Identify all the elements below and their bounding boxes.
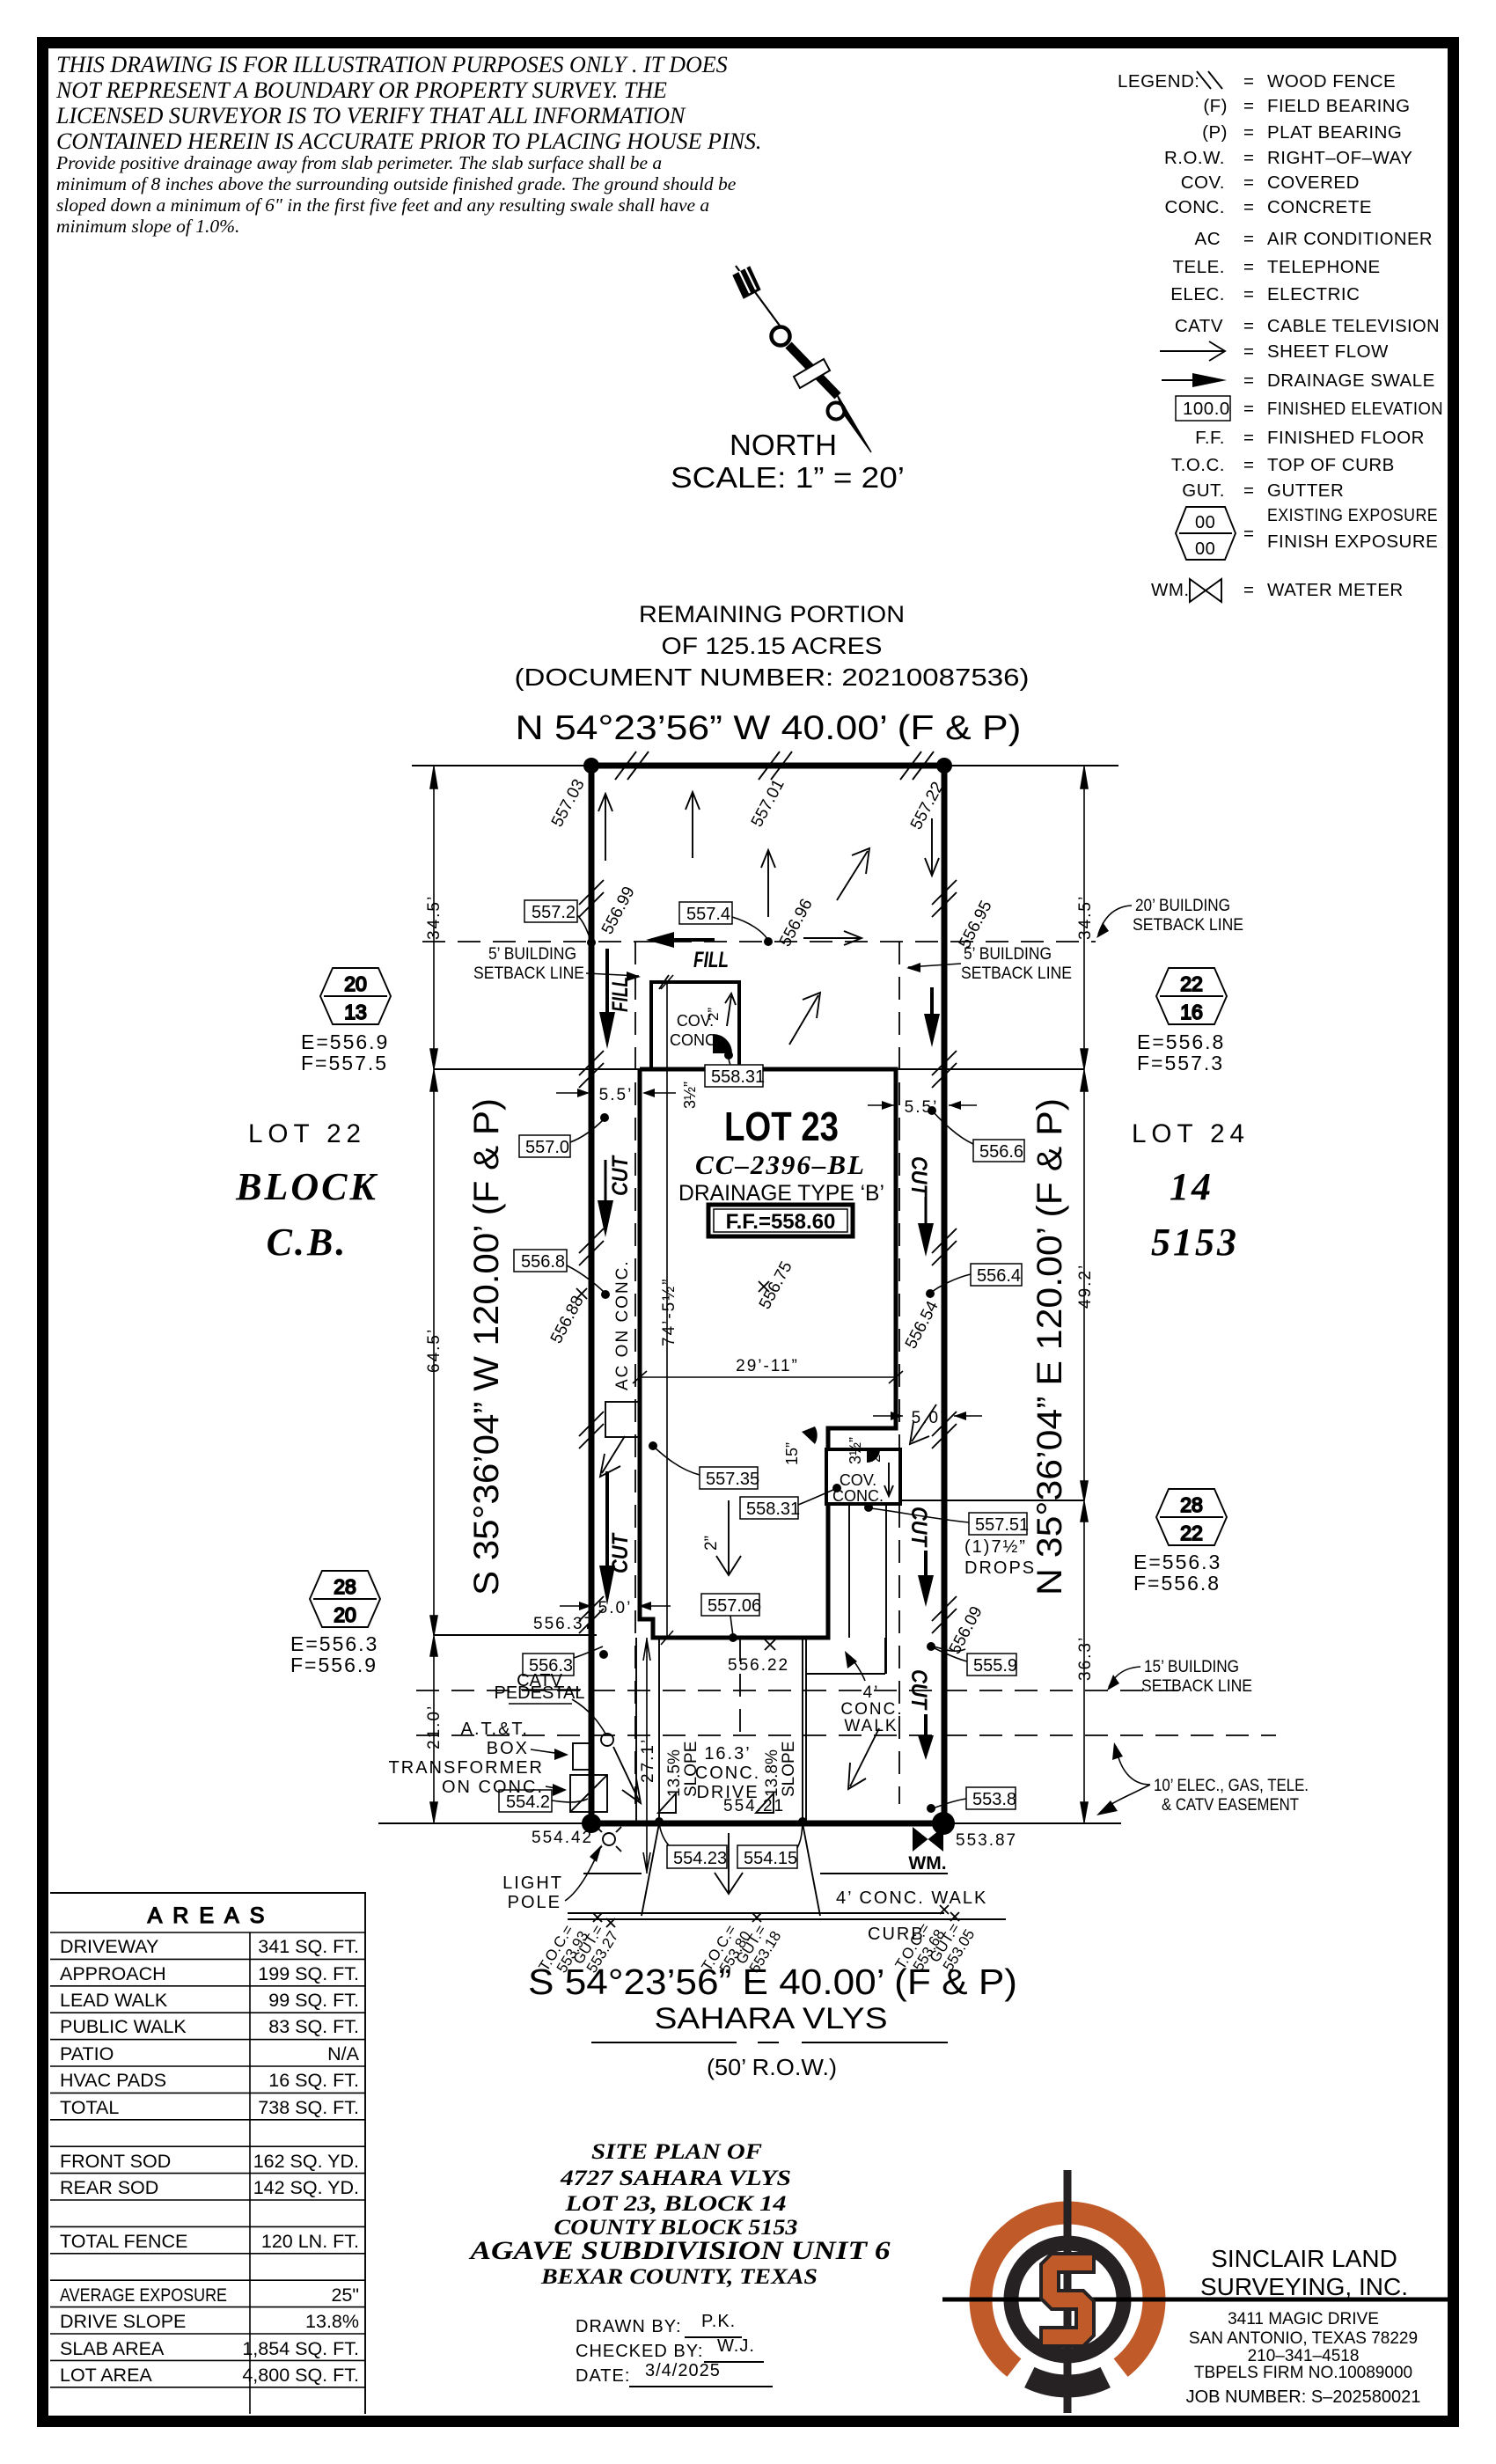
svg-text:GUTTER: GUTTER [1267, 480, 1344, 501]
svg-text:sloped down a minimum of 6" in: sloped down a minimum of 6" in the first… [56, 194, 709, 216]
svg-text:=: = [1243, 455, 1254, 475]
svg-text:RIGHT–OF–WAY: RIGHT–OF–WAY [1267, 148, 1412, 168]
svg-text:2”: 2” [705, 1008, 722, 1021]
svg-text:ELECTRIC: ELECTRIC [1267, 284, 1360, 304]
svg-text:N 54°23’56” W 40.00’ (F &: N 54°23’56” W 40.00’ (F & P) [516, 709, 1022, 747]
svg-text:557.2: 557.2 [532, 903, 576, 922]
svg-text:E=556.3: E=556.3 [290, 1632, 378, 1655]
svg-text:DRAINAGE SWALE: DRAINAGE SWALE [1267, 370, 1435, 391]
svg-text:CONC.: CONC. [840, 1700, 903, 1719]
svg-text:3/4/2025: 3/4/2025 [645, 2361, 721, 2380]
svg-text:DRIVE: DRIVE [696, 1783, 759, 1802]
svg-text:LIGHT: LIGHT [502, 1874, 563, 1893]
svg-text:SAHARA VLYS: SAHARA VLYS [655, 2002, 888, 2035]
svg-text:TOP OF CURB: TOP OF CURB [1267, 455, 1395, 475]
svg-text:556.09: 556.09 [946, 1603, 986, 1657]
svg-text:553.8: 553.8 [972, 1790, 1016, 1809]
svg-text:557.4: 557.4 [686, 905, 730, 924]
svg-text:FINISH EXPOSURE: FINISH EXPOSURE [1267, 532, 1438, 552]
svg-text:=: = [1243, 148, 1254, 168]
svg-text:SETBACK LINE: SETBACK LINE [1141, 1677, 1252, 1696]
svg-text:E=556.3: E=556.3 [1133, 1551, 1221, 1573]
svg-text:28: 28 [334, 1575, 356, 1598]
svg-text:TELEPHONE: TELEPHONE [1267, 257, 1381, 277]
svg-text:HVAC PADS: HVAC PADS [60, 2070, 166, 2091]
svg-text:15”: 15” [783, 1442, 801, 1465]
svg-text:SLAB AREA: SLAB AREA [60, 2338, 165, 2359]
svg-text:554.42: 554.42 [532, 1829, 593, 1847]
svg-text:557.0: 557.0 [525, 1138, 569, 1157]
svg-text:(DOCUMENT NUMBER: 20210087536: (DOCUMENT NUMBER: 20210087536) [515, 664, 1030, 691]
svg-text:341 SQ. FT.: 341 SQ. FT. [258, 1936, 359, 1957]
svg-text:WM.: WM. [908, 1853, 946, 1874]
svg-text:=: = [1243, 370, 1254, 391]
svg-text:556.8: 556.8 [521, 1252, 565, 1272]
svg-text:APPROACH: APPROACH [60, 1963, 166, 1984]
svg-text:FILL: FILL [693, 948, 729, 972]
svg-text:CC–2396–BL: CC–2396–BL [695, 1149, 866, 1180]
svg-text:25": 25" [331, 2284, 359, 2306]
svg-text:REMAINING PORTION: REMAINING PORTION [639, 601, 905, 627]
svg-text:LOT AREA: LOT AREA [60, 2365, 152, 2386]
svg-text:=: = [1243, 257, 1254, 277]
svg-text:=: = [1243, 341, 1254, 362]
svg-text:CONTAINED HEREIN IS ACCURATE P: CONTAINED HEREIN IS ACCURATE PRIOR TO PL… [56, 128, 761, 154]
svg-text:=: = [1243, 399, 1254, 419]
svg-text:5153: 5153 [1151, 1221, 1239, 1264]
svg-text:CONCRETE: CONCRETE [1267, 197, 1372, 217]
svg-text:120 LN. FT.: 120 LN. FT. [261, 2231, 359, 2252]
svg-text:PATIO: PATIO [60, 2043, 114, 2064]
svg-text:49.2’: 49.2’ [1076, 1264, 1095, 1309]
svg-text:SAN ANTONIO, TEXAS 78229: SAN ANTONIO, TEXAS 78229 [1189, 2329, 1418, 2348]
svg-text:COV.: COV. [1181, 172, 1225, 193]
svg-text:REAR SOD: REAR SOD [60, 2177, 158, 2198]
svg-text:555.9: 555.9 [973, 1656, 1017, 1676]
svg-text:PLAT BEARING: PLAT BEARING [1267, 122, 1402, 143]
svg-text:F=556.9: F=556.9 [290, 1654, 378, 1676]
svg-text:83 SQ. FT.: 83 SQ. FT. [268, 2016, 359, 2037]
svg-text:556.37: 556.37 [533, 1615, 595, 1633]
svg-text:100.0: 100.0 [1183, 399, 1230, 419]
svg-text:DROPS: DROPS [964, 1558, 1036, 1578]
svg-text:CUT: CUT [608, 1155, 633, 1196]
svg-text:WM.: WM. [1151, 580, 1190, 600]
svg-text:AIR CONDITIONER: AIR CONDITIONER [1267, 229, 1433, 249]
svg-text:DRIVEWAY: DRIVEWAY [60, 1936, 158, 1957]
svg-text:14: 14 [1170, 1165, 1214, 1208]
svg-text:28: 28 [1180, 1493, 1203, 1516]
svg-text:TOTAL FENCE: TOTAL FENCE [60, 2231, 187, 2252]
svg-text:SETBACK LINE: SETBACK LINE [961, 964, 1072, 983]
svg-text:POLE: POLE [508, 1893, 561, 1912]
svg-text:34.5’: 34.5’ [1076, 895, 1095, 940]
svg-text:COVERED: COVERED [1267, 172, 1360, 193]
svg-text:=: = [1243, 580, 1254, 600]
svg-text:5’ BUILDING: 5’ BUILDING [488, 945, 576, 964]
svg-text:TBPELS FIRM NO.10089000: TBPELS FIRM NO.10089000 [1194, 2364, 1412, 2382]
svg-text:LOT 23, BLOCK 14: LOT 23, BLOCK 14 [564, 2192, 786, 2216]
svg-text:& CATV EASEMENT: & CATV EASEMENT [1162, 1796, 1299, 1815]
svg-text:F.F.: F.F. [1195, 428, 1225, 448]
svg-text:557.51: 557.51 [975, 1515, 1029, 1535]
svg-text:SCALE: 1” = 20’: SCALE: 1” = 20’ [671, 461, 905, 494]
svg-text:16: 16 [1180, 1001, 1203, 1023]
svg-text:SURVEYING, INC.: SURVEYING, INC. [1200, 2273, 1408, 2300]
svg-text:ON CONC.: ON CONC. [442, 1778, 544, 1797]
svg-text:4’ CONC. WALK: 4’ CONC. WALK [836, 1888, 987, 1908]
svg-text:556.95: 556.95 [956, 898, 996, 951]
svg-text:5.0’: 5.0’ [598, 1599, 633, 1617]
svg-text:GUT.: GUT. [1182, 480, 1225, 501]
svg-text:WALK: WALK [844, 1717, 898, 1735]
svg-text:=: = [1243, 480, 1254, 501]
svg-text:27.1’: 27.1’ [639, 1738, 657, 1783]
svg-text:F=556.8: F=556.8 [1133, 1572, 1221, 1595]
svg-text:F.F.=558.60: F.F.=558.60 [726, 1210, 836, 1234]
svg-text:S 35°36’04” W 120.00’ (F & P): S 35°36’04” W 120.00’ (F & P) [467, 1098, 506, 1595]
svg-text:AREAS: AREAS [148, 1903, 275, 1928]
svg-text:142 SQ. YD.: 142 SQ. YD. [253, 2177, 359, 2198]
svg-text:minimum of 8 inches above the: minimum of 8 inches above the surroundin… [56, 173, 737, 194]
svg-text:FINISHED ELEVATION: FINISHED ELEVATION [1267, 399, 1443, 419]
svg-text:557.01: 557.01 [748, 776, 788, 830]
svg-text:E=556.8: E=556.8 [1137, 1030, 1225, 1053]
svg-text:CUT: CUT [906, 1156, 931, 1198]
svg-text:=: = [1243, 71, 1254, 92]
svg-text:CUT: CUT [906, 1669, 931, 1711]
svg-text:CUT: CUT [906, 1507, 931, 1548]
svg-text:556.4: 556.4 [977, 1266, 1021, 1286]
svg-text:22: 22 [1180, 1522, 1203, 1544]
svg-text:AGAVE SUBDIVISION UNIT 6: AGAVE SUBDIVISION UNIT 6 [468, 2236, 890, 2265]
svg-text:DATE:: DATE: [576, 2366, 630, 2386]
svg-text:NORTH: NORTH [730, 429, 837, 461]
svg-text:557.35: 557.35 [706, 1470, 759, 1489]
svg-text:738 SQ. FT.: 738 SQ. FT. [258, 2097, 359, 2118]
svg-text:00: 00 [1195, 513, 1215, 532]
svg-text:ELEC.: ELEC. [1170, 284, 1225, 304]
svg-text:LOT 22: LOT 22 [248, 1119, 366, 1148]
svg-text:210–341–4518: 210–341–4518 [1248, 2347, 1360, 2365]
svg-text:LEAD WALK: LEAD WALK [60, 1990, 168, 2011]
svg-text:2”: 2” [702, 1536, 721, 1551]
svg-text:=: = [1243, 96, 1254, 116]
svg-text:AC ON CONC.: AC ON CONC. [613, 1259, 632, 1390]
svg-text:TELE.: TELE. [1173, 257, 1225, 277]
svg-text:=: = [1243, 197, 1254, 217]
svg-text:BEXAR COUNTY, TEXAS: BEXAR COUNTY, TEXAS [540, 2265, 818, 2289]
svg-text:OF 125.15 ACRES: OF 125.15 ACRES [662, 633, 883, 659]
svg-text:4727 SAHARA VLYS: 4727 SAHARA VLYS [560, 2167, 791, 2190]
svg-text:WOOD FENCE: WOOD FENCE [1267, 71, 1396, 92]
svg-text:N/A: N/A [327, 2043, 360, 2064]
svg-text:=: = [1243, 428, 1254, 448]
svg-text:16.3’: 16.3’ [704, 1744, 751, 1764]
svg-text:C.B.: C.B. [267, 1221, 348, 1264]
svg-text:SETBACK LINE: SETBACK LINE [1133, 916, 1243, 935]
svg-text:554.23: 554.23 [673, 1849, 727, 1868]
svg-text:29’-11”: 29’-11” [736, 1357, 799, 1375]
svg-text:CABLE TELEVISION: CABLE TELEVISION [1267, 316, 1440, 336]
svg-text:CONC.: CONC. [1164, 197, 1225, 217]
svg-text:556.6: 556.6 [979, 1142, 1023, 1162]
svg-text:556.99: 556.99 [598, 884, 639, 937]
svg-text:WATER METER: WATER METER [1267, 580, 1404, 600]
svg-text:PEDESTAL: PEDESTAL [495, 1683, 585, 1703]
svg-text:22: 22 [1180, 972, 1203, 995]
svg-text:20: 20 [334, 1603, 356, 1626]
svg-text:SHEET FLOW: SHEET FLOW [1267, 341, 1389, 362]
svg-text:=: = [1243, 122, 1254, 143]
svg-text:13.5%: 13.5% [665, 1749, 684, 1797]
svg-text:1,854 SQ. FT.: 1,854 SQ. FT. [242, 2338, 359, 2359]
svg-text:DRAWN BY:: DRAWN BY: [576, 2317, 682, 2336]
svg-text:TOTAL: TOTAL [60, 2097, 119, 2118]
svg-text:64.5’: 64.5’ [425, 1328, 444, 1373]
svg-text:34.5’: 34.5’ [425, 895, 444, 940]
svg-text:99 SQ. FT.: 99 SQ. FT. [268, 1990, 359, 2011]
svg-text:FIELD BEARING: FIELD BEARING [1267, 96, 1411, 116]
svg-text:13.8%: 13.8% [305, 2311, 359, 2332]
svg-text:DRAINAGE TYPE ‘B’: DRAINAGE TYPE ‘B’ [678, 1181, 884, 1206]
svg-text:TRANSFORMER: TRANSFORMER [389, 1758, 544, 1778]
svg-text:AC: AC [1195, 229, 1221, 249]
svg-text:BLOCK: BLOCK [235, 1165, 378, 1208]
svg-text:BOX: BOX [487, 1739, 529, 1758]
svg-text:556.88: 556.88 [547, 1293, 588, 1346]
svg-text:A.T.&T.: A.T.&T. [461, 1720, 529, 1739]
svg-text:LEGEND:: LEGEND: [1118, 71, 1200, 92]
svg-text:558.31: 558.31 [711, 1067, 765, 1087]
svg-text:LOT 24: LOT 24 [1132, 1119, 1250, 1148]
svg-text:SETBACK LINE: SETBACK LINE [473, 964, 584, 983]
svg-text:P.K.: P.K. [701, 2312, 736, 2331]
svg-text:16 SQ. FT.: 16 SQ. FT. [268, 2070, 359, 2091]
svg-text:(1)7½”: (1)7½” [964, 1537, 1027, 1557]
svg-text:SITE PLAN OF: SITE PLAN OF [591, 2140, 762, 2164]
svg-text:20’ BUILDING: 20’ BUILDING [1135, 897, 1230, 915]
svg-text:LOT 23: LOT 23 [724, 1104, 839, 1149]
svg-text:SINCLAIR LAND: SINCLAIR LAND [1211, 2245, 1397, 2272]
svg-text:3½”: 3½” [847, 1437, 864, 1464]
svg-text:557.03: 557.03 [548, 776, 589, 830]
svg-text:CONC.: CONC. [695, 1764, 760, 1783]
svg-text:THIS DRAWING IS FOR ILLUSTRATI: THIS DRAWING IS FOR ILLUSTRATION PURPOSE… [56, 52, 728, 77]
svg-text:SLOPE: SLOPE [780, 1742, 798, 1797]
svg-text:5’ BUILDING: 5’ BUILDING [964, 945, 1052, 964]
svg-text:21.0’: 21.0’ [425, 1705, 444, 1749]
svg-text:(50’ R.O.W.): (50’ R.O.W.) [707, 2054, 837, 2080]
svg-text:199 SQ. FT.: 199 SQ. FT. [258, 1963, 359, 1984]
svg-text:W.J.: W.J. [717, 2336, 755, 2356]
svg-text:E=556.9: E=556.9 [301, 1030, 389, 1053]
svg-text:556.54: 556.54 [902, 1298, 942, 1353]
svg-text:=: = [1243, 229, 1254, 249]
svg-text:554.15: 554.15 [744, 1849, 797, 1868]
svg-text:JOB NUMBER: S–202580021: JOB NUMBER: S–202580021 [1186, 2387, 1421, 2407]
svg-text:CATV: CATV [1175, 316, 1223, 336]
svg-text:NOT REPRESENT A BOUNDARY OR PR: NOT REPRESENT A BOUNDARY OR PROPERTY SUR… [55, 77, 667, 103]
svg-text:DRIVE SLOPE: DRIVE SLOPE [60, 2311, 186, 2332]
svg-text:(P): (P) [1202, 122, 1228, 143]
svg-text:00: 00 [1195, 539, 1215, 559]
svg-text:PUBLIC WALK: PUBLIC WALK [60, 2016, 187, 2037]
svg-text:556.22: 556.22 [728, 1656, 789, 1675]
svg-text:FRONT SOD: FRONT SOD [60, 2151, 171, 2172]
svg-text:FINISHED FLOOR: FINISHED FLOOR [1267, 428, 1425, 448]
svg-text:=: = [1243, 524, 1254, 544]
svg-text:=: = [1243, 284, 1254, 304]
svg-text:13.8%: 13.8% [763, 1749, 781, 1797]
svg-text:4,800 SQ. FT.: 4,800 SQ. FT. [242, 2365, 359, 2386]
svg-text:10’ ELEC., GAS, TELE.: 10’ ELEC., GAS, TELE. [1154, 1777, 1309, 1795]
svg-text:3½”: 3½” [681, 1082, 699, 1109]
svg-text:36.3’: 36.3’ [1076, 1636, 1095, 1681]
svg-text:13: 13 [344, 1001, 367, 1023]
svg-text:557.06: 557.06 [708, 1596, 761, 1616]
svg-text:S 54°23’56” E 40.00’ (F &: S 54°23’56” E 40.00’ (F & P) [528, 1962, 1017, 2002]
svg-text:Provide positive drainage away: Provide positive drainage away from slab… [55, 152, 662, 173]
svg-text:20: 20 [344, 972, 367, 995]
svg-text:T.O.C.: T.O.C. [1171, 455, 1225, 475]
svg-text:LICENSED SURVEYOR IS TO VERIFY: LICENSED SURVEYOR IS TO VERIFY THAT ALL … [55, 103, 686, 128]
svg-text:F=557.5: F=557.5 [301, 1052, 388, 1074]
svg-text:162 SQ. YD.: 162 SQ. YD. [253, 2151, 359, 2172]
svg-text:553.87: 553.87 [956, 1831, 1017, 1850]
svg-text:15’ BUILDING: 15’ BUILDING [1144, 1658, 1239, 1676]
svg-text:74’-5½”: 74’-5½” [660, 1278, 678, 1346]
svg-text:4’: 4’ [863, 1683, 880, 1702]
svg-text:FILL: FILL [608, 977, 633, 1012]
svg-text:EXISTING EXPOSURE: EXISTING EXPOSURE [1267, 505, 1438, 525]
svg-text:558.31: 558.31 [746, 1500, 800, 1519]
svg-text:=: = [1243, 172, 1254, 193]
svg-text:=: = [1243, 316, 1254, 336]
svg-text:3411 MAGIC DRIVE: 3411 MAGIC DRIVE [1228, 2310, 1379, 2328]
svg-text:COV.: COV. [840, 1471, 876, 1489]
svg-text:CHECKED BY:: CHECKED BY: [576, 2342, 703, 2361]
svg-text:minimum slope of 1.0%.: minimum slope of 1.0%. [56, 216, 239, 237]
svg-text:AVERAGE EXPOSURE: AVERAGE EXPOSURE [60, 2284, 227, 2306]
svg-text:5.0’: 5.0’ [912, 1409, 946, 1427]
svg-text:R.O.W.: R.O.W. [1164, 148, 1225, 168]
svg-text:(F): (F) [1203, 96, 1228, 116]
svg-text:CUT: CUT [608, 1532, 633, 1573]
svg-text:N 35°36’04” E 120.00’ (F & P): N 35°36’04” E 120.00’ (F & P) [1030, 1098, 1069, 1595]
svg-text:F=557.3: F=557.3 [1137, 1052, 1224, 1074]
svg-text:5.5’: 5.5’ [599, 1086, 634, 1104]
